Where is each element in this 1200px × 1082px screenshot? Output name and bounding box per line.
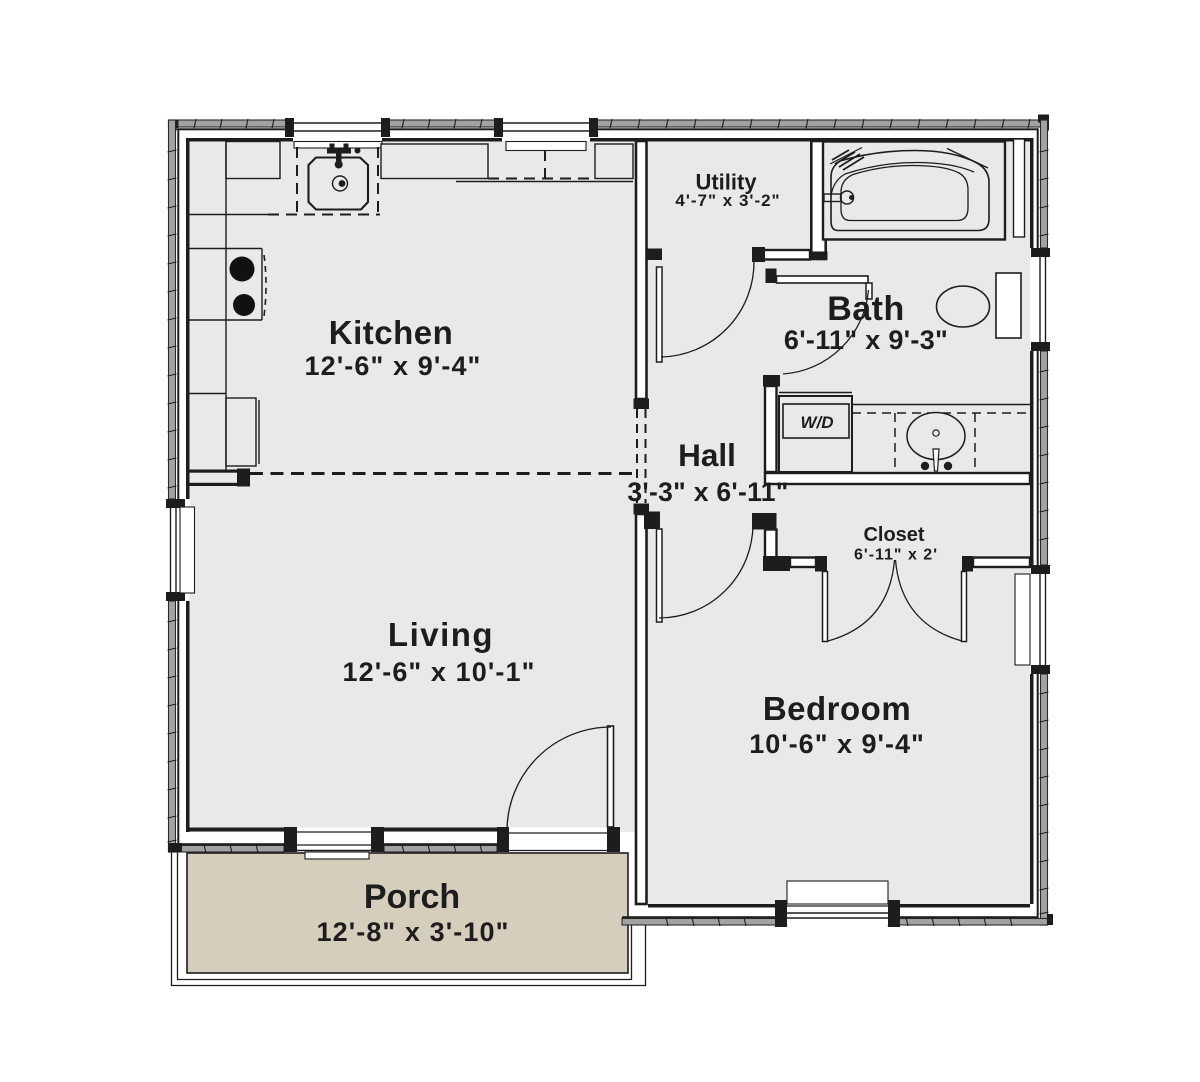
svg-text:Closet: Closet xyxy=(863,524,924,546)
svg-text:Hall: Hall xyxy=(678,437,736,473)
svg-text:6'-11" x 2': 6'-11" x 2' xyxy=(854,547,938,564)
svg-text:Porch: Porch xyxy=(364,878,460,916)
svg-text:Bath: Bath xyxy=(827,290,905,328)
svg-text:12'-8" x 3'-10": 12'-8" x 3'-10" xyxy=(316,917,509,947)
svg-text:Kitchen: Kitchen xyxy=(329,314,454,351)
svg-text:4'-7" x 3'-2": 4'-7" x 3'-2" xyxy=(675,191,780,210)
svg-text:W/D: W/D xyxy=(800,413,833,432)
svg-text:3'-3" x 6'-11": 3'-3" x 6'-11" xyxy=(627,477,788,507)
svg-text:12'-6" x 10'-1": 12'-6" x 10'-1" xyxy=(342,657,535,687)
svg-text:Bedroom: Bedroom xyxy=(763,690,911,727)
svg-text:10'-6" x 9'-4": 10'-6" x 9'-4" xyxy=(749,729,925,759)
svg-text:6'-11" x 9'-3": 6'-11" x 9'-3" xyxy=(784,325,948,355)
svg-text:12'-6" x 9'-4": 12'-6" x 9'-4" xyxy=(305,351,482,381)
svg-text:Living: Living xyxy=(388,616,494,653)
